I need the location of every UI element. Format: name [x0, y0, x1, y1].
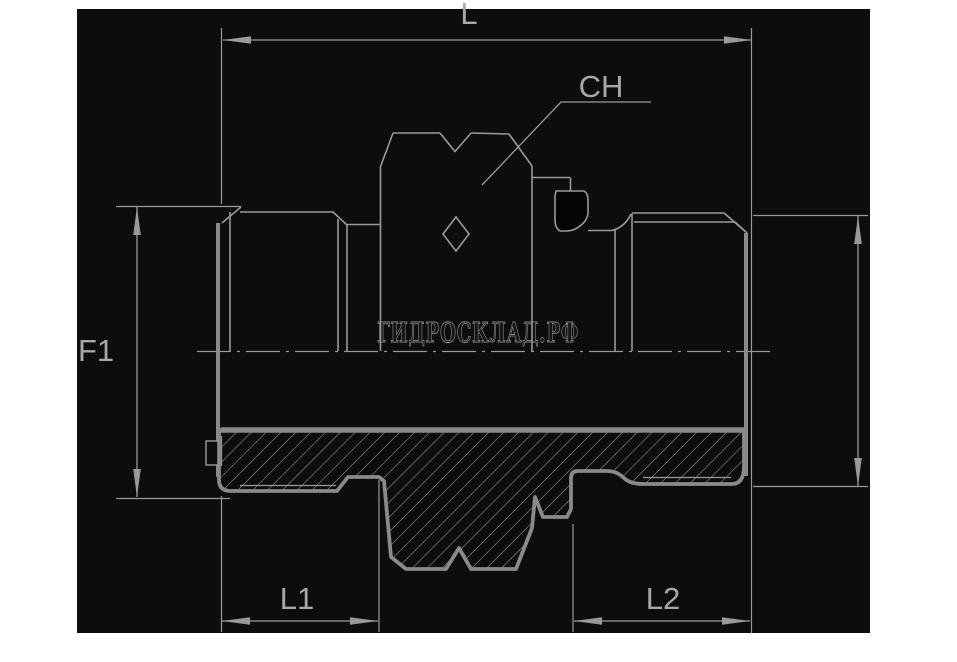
technical-drawing-canvas: ГИДРОСКЛАД.РФ: [0, 0, 957, 662]
watermark-text: ГИДРОСКЛАД.РФ: [377, 318, 579, 349]
dimension-label-F1: F1: [78, 333, 114, 368]
hex-top-edge-right: [471, 133, 509, 134]
dimension-label-CH: CH: [579, 69, 624, 104]
drawing-page: ГИДРОСКЛАД.РФ: [0, 0, 957, 662]
dimension-label-L1: L1: [280, 581, 314, 616]
dimension-label-L2: L2: [646, 581, 680, 616]
thread-relief-groove: [206, 441, 218, 465]
dimension-label-L: L: [460, 0, 477, 31]
